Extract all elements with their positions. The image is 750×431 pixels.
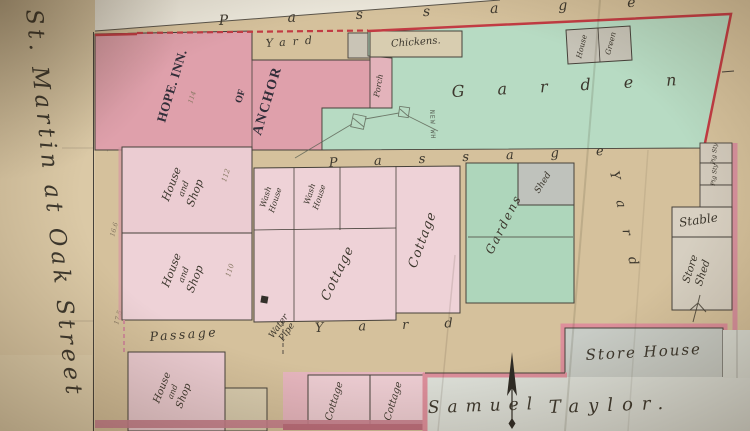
photo-artifacts <box>0 0 750 431</box>
vignette <box>0 0 750 431</box>
map-canvas: St. Martin at Oak Street 12.1 16.6 17.5 … <box>0 0 750 431</box>
